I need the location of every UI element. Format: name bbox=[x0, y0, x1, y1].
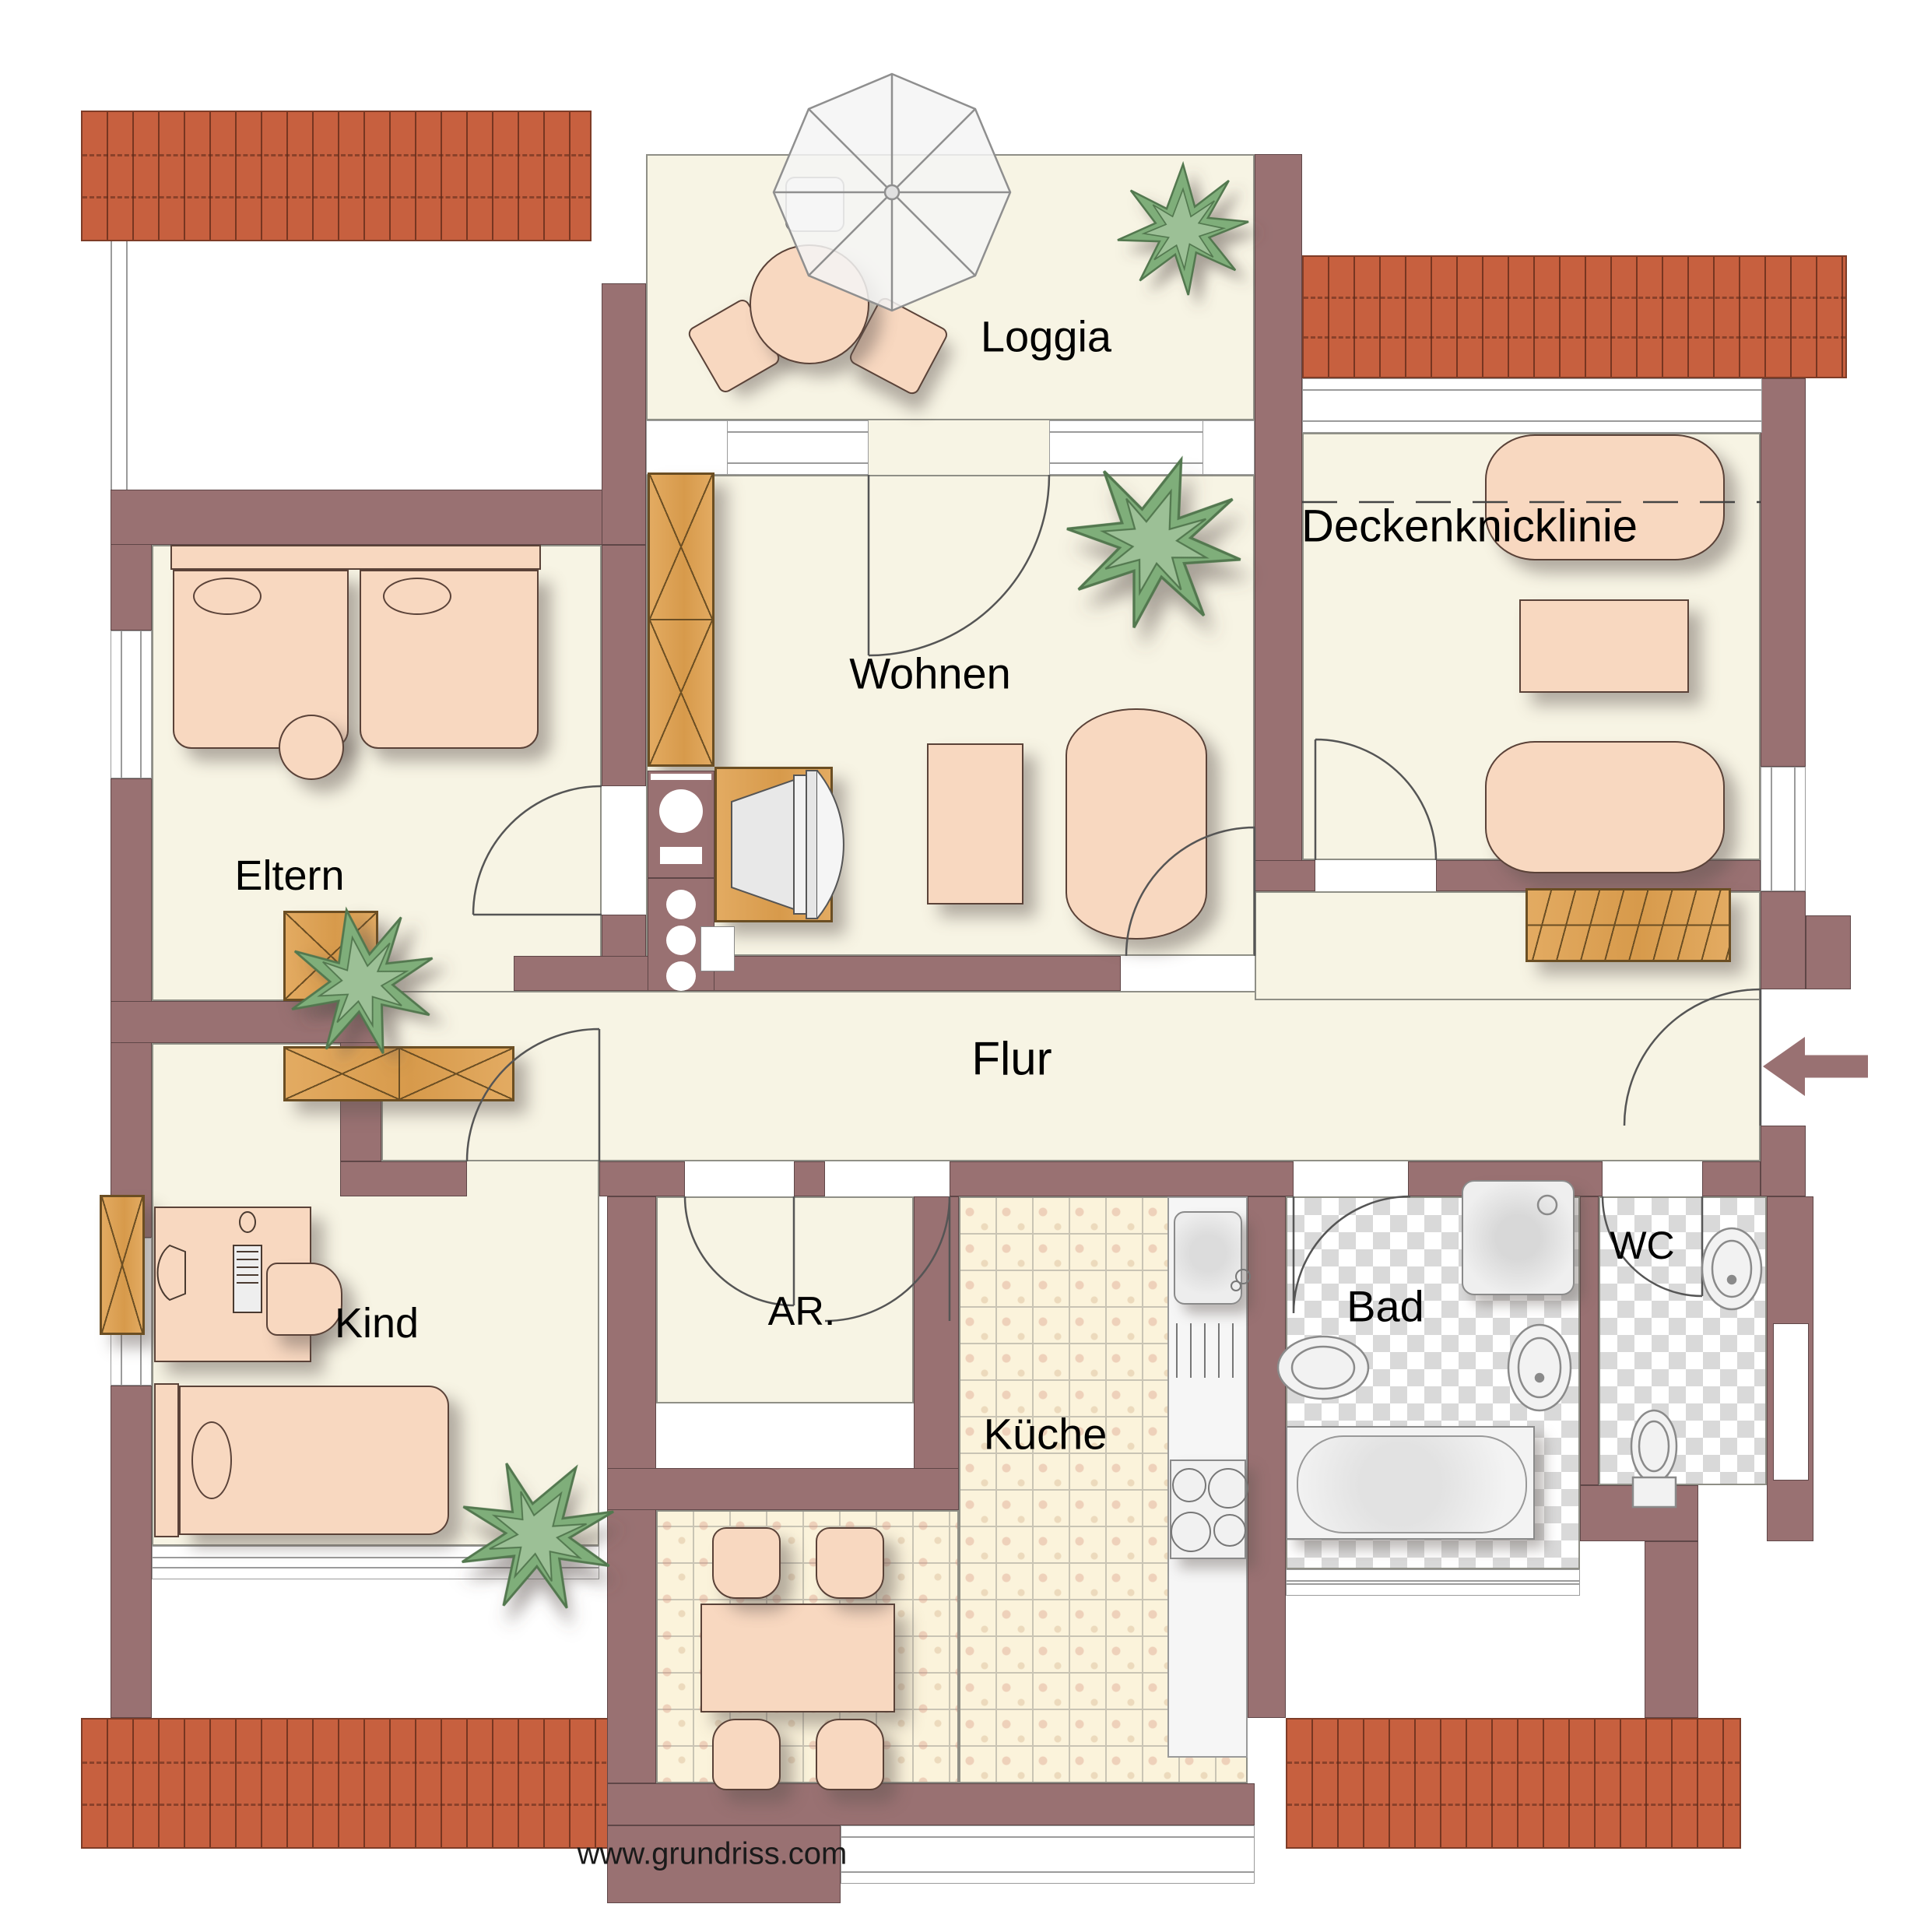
eltern-bed-headboard bbox=[170, 545, 541, 570]
essz-coffee-table bbox=[1519, 599, 1689, 693]
wall-right-1 bbox=[1761, 378, 1806, 767]
loggia-table bbox=[750, 244, 869, 364]
wall-left-3 bbox=[111, 1386, 152, 1718]
dining-chair-2 bbox=[816, 1527, 884, 1599]
room-floor-flur bbox=[381, 991, 1761, 1161]
wardrobe-cell bbox=[649, 620, 713, 765]
cabinet-cell bbox=[101, 1196, 143, 1333]
wall-loggia-left bbox=[602, 283, 646, 545]
window-eltern bbox=[111, 631, 152, 778]
window-loggia-1 bbox=[727, 420, 869, 475]
wall-eltern-right-a bbox=[602, 545, 646, 786]
roof-strip-bottom-left bbox=[81, 1718, 615, 1849]
kind-top-sideboard bbox=[283, 1046, 514, 1101]
window-loggia-2 bbox=[1049, 420, 1203, 475]
eltern-pillow-left bbox=[193, 578, 262, 615]
annotation-deckenknicklinie: Deckenknicklinie bbox=[1301, 501, 1638, 553]
kind-pillow bbox=[191, 1421, 232, 1499]
wall-wc-descender bbox=[1645, 1541, 1698, 1718]
sideboard-cell bbox=[285, 1048, 399, 1100]
wall-flur-bottom-c bbox=[794, 1161, 825, 1196]
room-label-ar: AR. bbox=[768, 1288, 836, 1335]
wall-eltern-kind-divider bbox=[111, 1001, 381, 1043]
room-label-kind: Kind bbox=[335, 1299, 419, 1347]
shower bbox=[1462, 1180, 1575, 1295]
bathtub-inner bbox=[1297, 1435, 1527, 1533]
sideboard-cell bbox=[399, 1048, 514, 1100]
loggia-umbrella-stand bbox=[785, 177, 844, 232]
wall-ar-right bbox=[914, 1196, 959, 1510]
entrance-arrow-icon bbox=[1763, 1037, 1868, 1096]
kind-desk-chair bbox=[266, 1263, 342, 1336]
wall-right-3 bbox=[1761, 1126, 1806, 1196]
wall-right-step bbox=[1806, 915, 1851, 989]
eltern-pillow-right bbox=[383, 578, 451, 615]
wall-flur-bottom-a bbox=[340, 1161, 467, 1196]
kitchen-stove bbox=[1170, 1460, 1246, 1559]
wohnen-wardrobe bbox=[648, 472, 714, 767]
wall-wc-bottom bbox=[1580, 1485, 1698, 1541]
tv-board-cell bbox=[716, 768, 831, 921]
wall-ar-bottom bbox=[607, 1468, 959, 1510]
wohnen-white-box bbox=[700, 926, 735, 971]
dining-chair-4 bbox=[816, 1719, 884, 1790]
wall-eltern-top bbox=[111, 490, 646, 545]
shoe-cabinet-cell bbox=[1527, 890, 1729, 961]
room-label-eltern: Eltern bbox=[234, 852, 344, 900]
floor-plan: Loggia Wohnen Eltern Kind Flur AR. Küche… bbox=[0, 0, 1931, 1932]
kitchen-sink bbox=[1174, 1211, 1242, 1305]
kind-wall-cabinet bbox=[100, 1195, 145, 1335]
door-gap-loggia bbox=[869, 420, 1049, 475]
wall-flur-bottom-f bbox=[1702, 1161, 1761, 1196]
window-right bbox=[1761, 767, 1806, 891]
window-bad-bottom bbox=[1286, 1569, 1580, 1596]
wall-right-2 bbox=[1761, 891, 1806, 989]
wohnen-coffee-table bbox=[927, 743, 1023, 905]
room-label-kueche: Küche bbox=[984, 1409, 1108, 1460]
roof-strip-top-left bbox=[81, 111, 592, 241]
wall-kueche-bottom bbox=[607, 1783, 1255, 1825]
eltern-side-table bbox=[279, 715, 344, 780]
roof-edge-lines bbox=[111, 241, 128, 490]
wall-flur-top bbox=[514, 956, 1121, 991]
wall-bad-wc-divider bbox=[1580, 1196, 1599, 1485]
room-label-wc: WC bbox=[1610, 1223, 1674, 1268]
room-label-wohnen: Wohnen bbox=[849, 648, 1011, 699]
window-kind-bottom bbox=[152, 1546, 599, 1579]
wohnen-sofa bbox=[1066, 708, 1207, 940]
wall-flur-bottom-d bbox=[950, 1161, 1294, 1196]
wall-essz-bottom-left bbox=[1255, 860, 1315, 891]
roof-strip-bottom-right bbox=[1286, 1718, 1741, 1849]
eltern-wardrobe bbox=[283, 911, 378, 1001]
entrance-shoe-cabinet bbox=[1525, 888, 1731, 962]
window-kueche-bottom bbox=[841, 1825, 1255, 1884]
watermark: www.grundriss.com bbox=[578, 1837, 848, 1872]
dining-chair-1 bbox=[712, 1527, 781, 1599]
kind-bed-headboard bbox=[154, 1383, 179, 1537]
window-band-essz-top bbox=[1302, 378, 1762, 433]
room-label-flur: Flur bbox=[971, 1032, 1052, 1086]
wall-wohnen-essz-divider bbox=[1255, 154, 1302, 891]
dining-chair-3 bbox=[712, 1719, 781, 1790]
wall-flur-bottom-b bbox=[599, 1161, 685, 1196]
wardrobe-cell bbox=[649, 474, 713, 620]
dining-table bbox=[700, 1604, 895, 1712]
room-label-bad: Bad bbox=[1346, 1281, 1424, 1332]
roof-strip-top-right bbox=[1302, 255, 1847, 378]
wall-niche bbox=[1773, 1323, 1809, 1481]
wardrobe-cell bbox=[285, 912, 377, 999]
room-label-loggia: Loggia bbox=[981, 311, 1111, 362]
wall-kueche-right bbox=[1248, 1196, 1286, 1718]
essz-sofa-bottom bbox=[1485, 741, 1725, 873]
wohnen-tv-board bbox=[714, 767, 833, 922]
